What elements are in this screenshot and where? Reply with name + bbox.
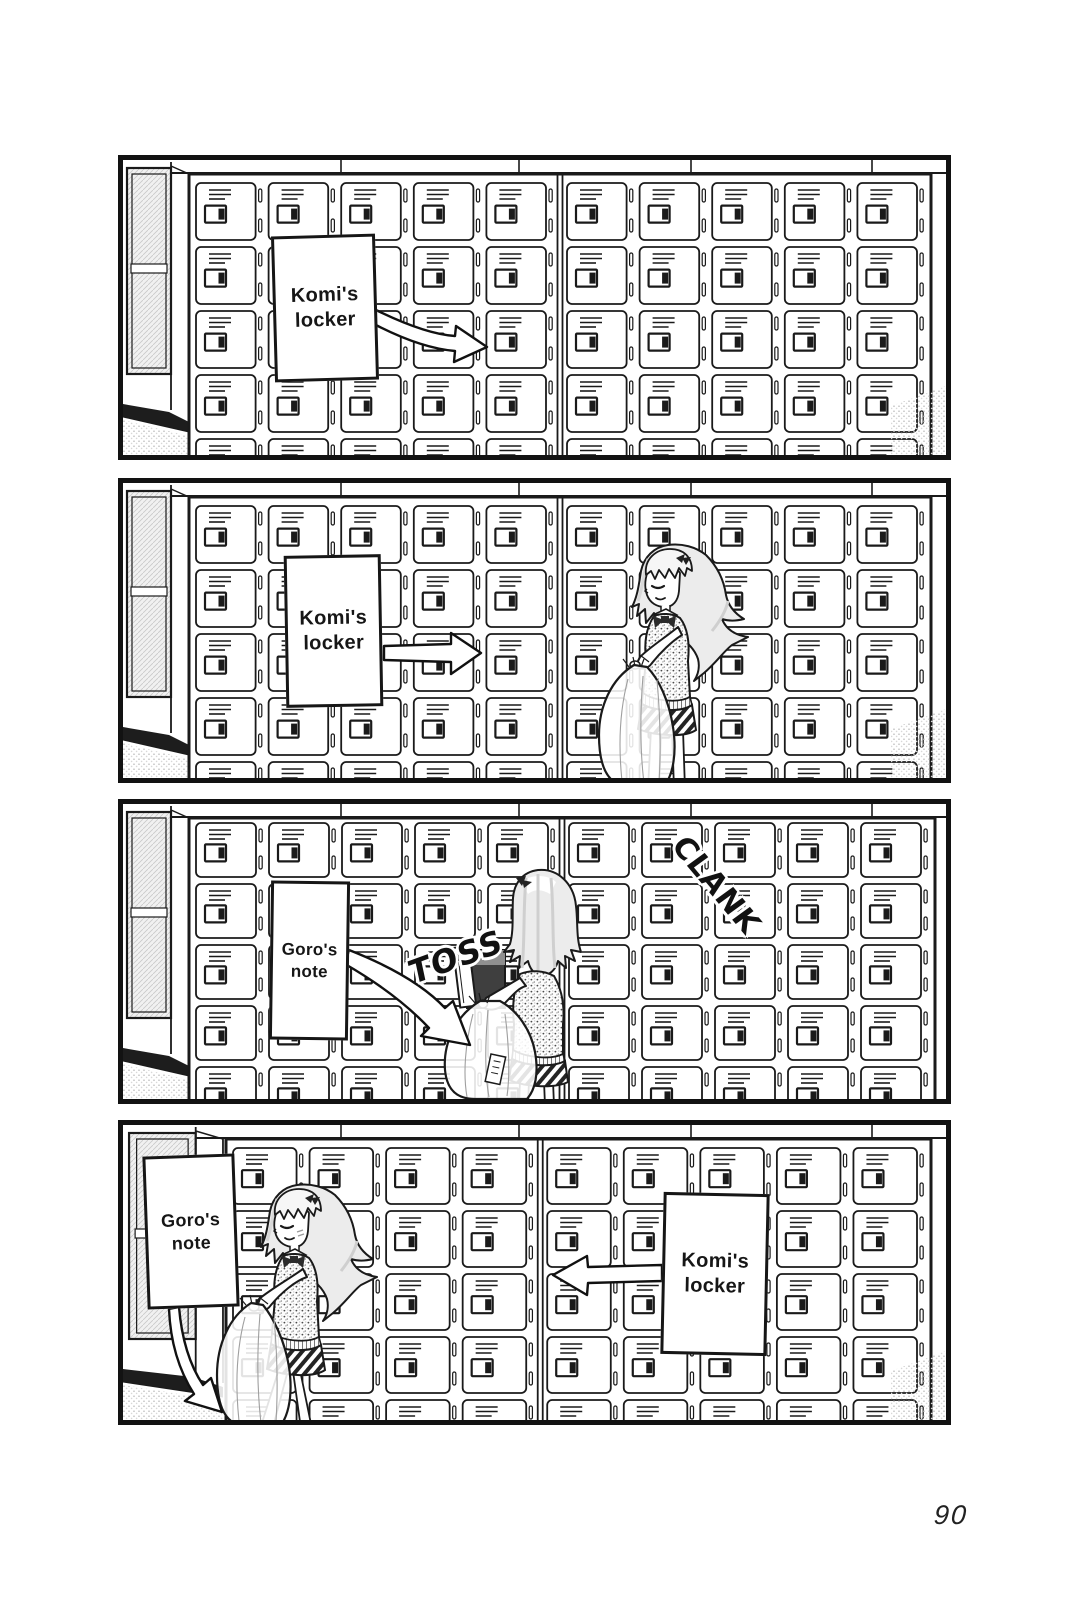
page-number: 90 [933,1500,969,1531]
right-wall [935,804,946,1099]
locker-room-scene-2 [123,483,946,778]
caption-komis-locker-2: Komi's locker [284,554,384,708]
window [123,806,189,1099]
window [123,485,189,778]
caption-goros-note-2: Goro's note [142,1153,239,1309]
caption-goros-note-1: Goro's note [269,880,350,1040]
window [123,162,189,455]
locker-room-scene-4 [123,1125,946,1420]
panel-4: Goro's note Komi's locker [118,1120,951,1425]
wall [163,804,946,817]
wall [163,160,946,173]
panel-1: Komi's locker [118,155,951,460]
wall [163,483,946,496]
panel-3: Goro's note TOSS CLANK [118,799,951,1104]
caption-komis-locker-1: Komi's locker [271,234,379,383]
wall [163,1125,946,1138]
locker-room-scene-3 [123,804,946,1099]
manga-page: Komi's locker Komi's locker Goro's note … [0,0,1067,1600]
panel-2: Komi's locker [118,478,951,783]
locker-room-scene-1 [123,160,946,455]
caption-komis-locker-3: Komi's locker [660,1192,769,1356]
